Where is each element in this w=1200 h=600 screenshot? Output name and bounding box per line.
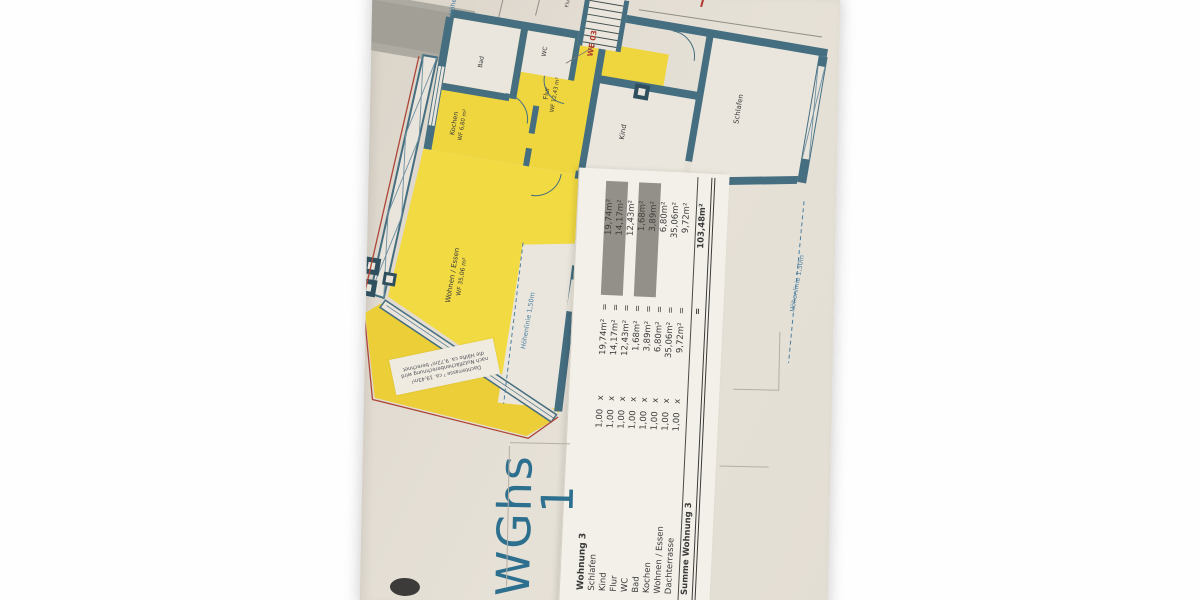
cell-op: x bbox=[672, 390, 684, 412]
sum-result: 103,48m² bbox=[693, 203, 711, 300]
sheet-title: WGhs 1 bbox=[489, 418, 585, 598]
photographed-floor-plan-sheet: Kochen WF 6,80 m² Flur WF 12,43 m² Wohne… bbox=[0, 0, 1200, 600]
red-tick-mark bbox=[700, 0, 704, 7]
cell-factor: 1,00 bbox=[670, 412, 683, 452]
cell-area: 9,72m² bbox=[673, 322, 687, 390]
dark-spot bbox=[390, 578, 420, 597]
area-table-strip: Wohnung 3 Schlafen1,00x19,74m²=19,74m²Ki… bbox=[558, 168, 730, 600]
room-label-flur-upper: Flur bbox=[564, 0, 572, 8]
area-table: Wohnung 3 Schlafen1,00x19,74m²=19,74m²Ki… bbox=[564, 172, 724, 600]
floor-plan-paper: Kochen WF 6,80 m² Flur WF 12,43 m² Wohne… bbox=[360, 0, 841, 600]
cell-eq: = bbox=[677, 298, 689, 322]
sheet-number: 1 bbox=[539, 419, 581, 514]
room-bad bbox=[443, 18, 521, 95]
sum-equals: = bbox=[692, 299, 706, 324]
height-line-label-right: Höhenlinie 1,50m bbox=[788, 254, 806, 312]
